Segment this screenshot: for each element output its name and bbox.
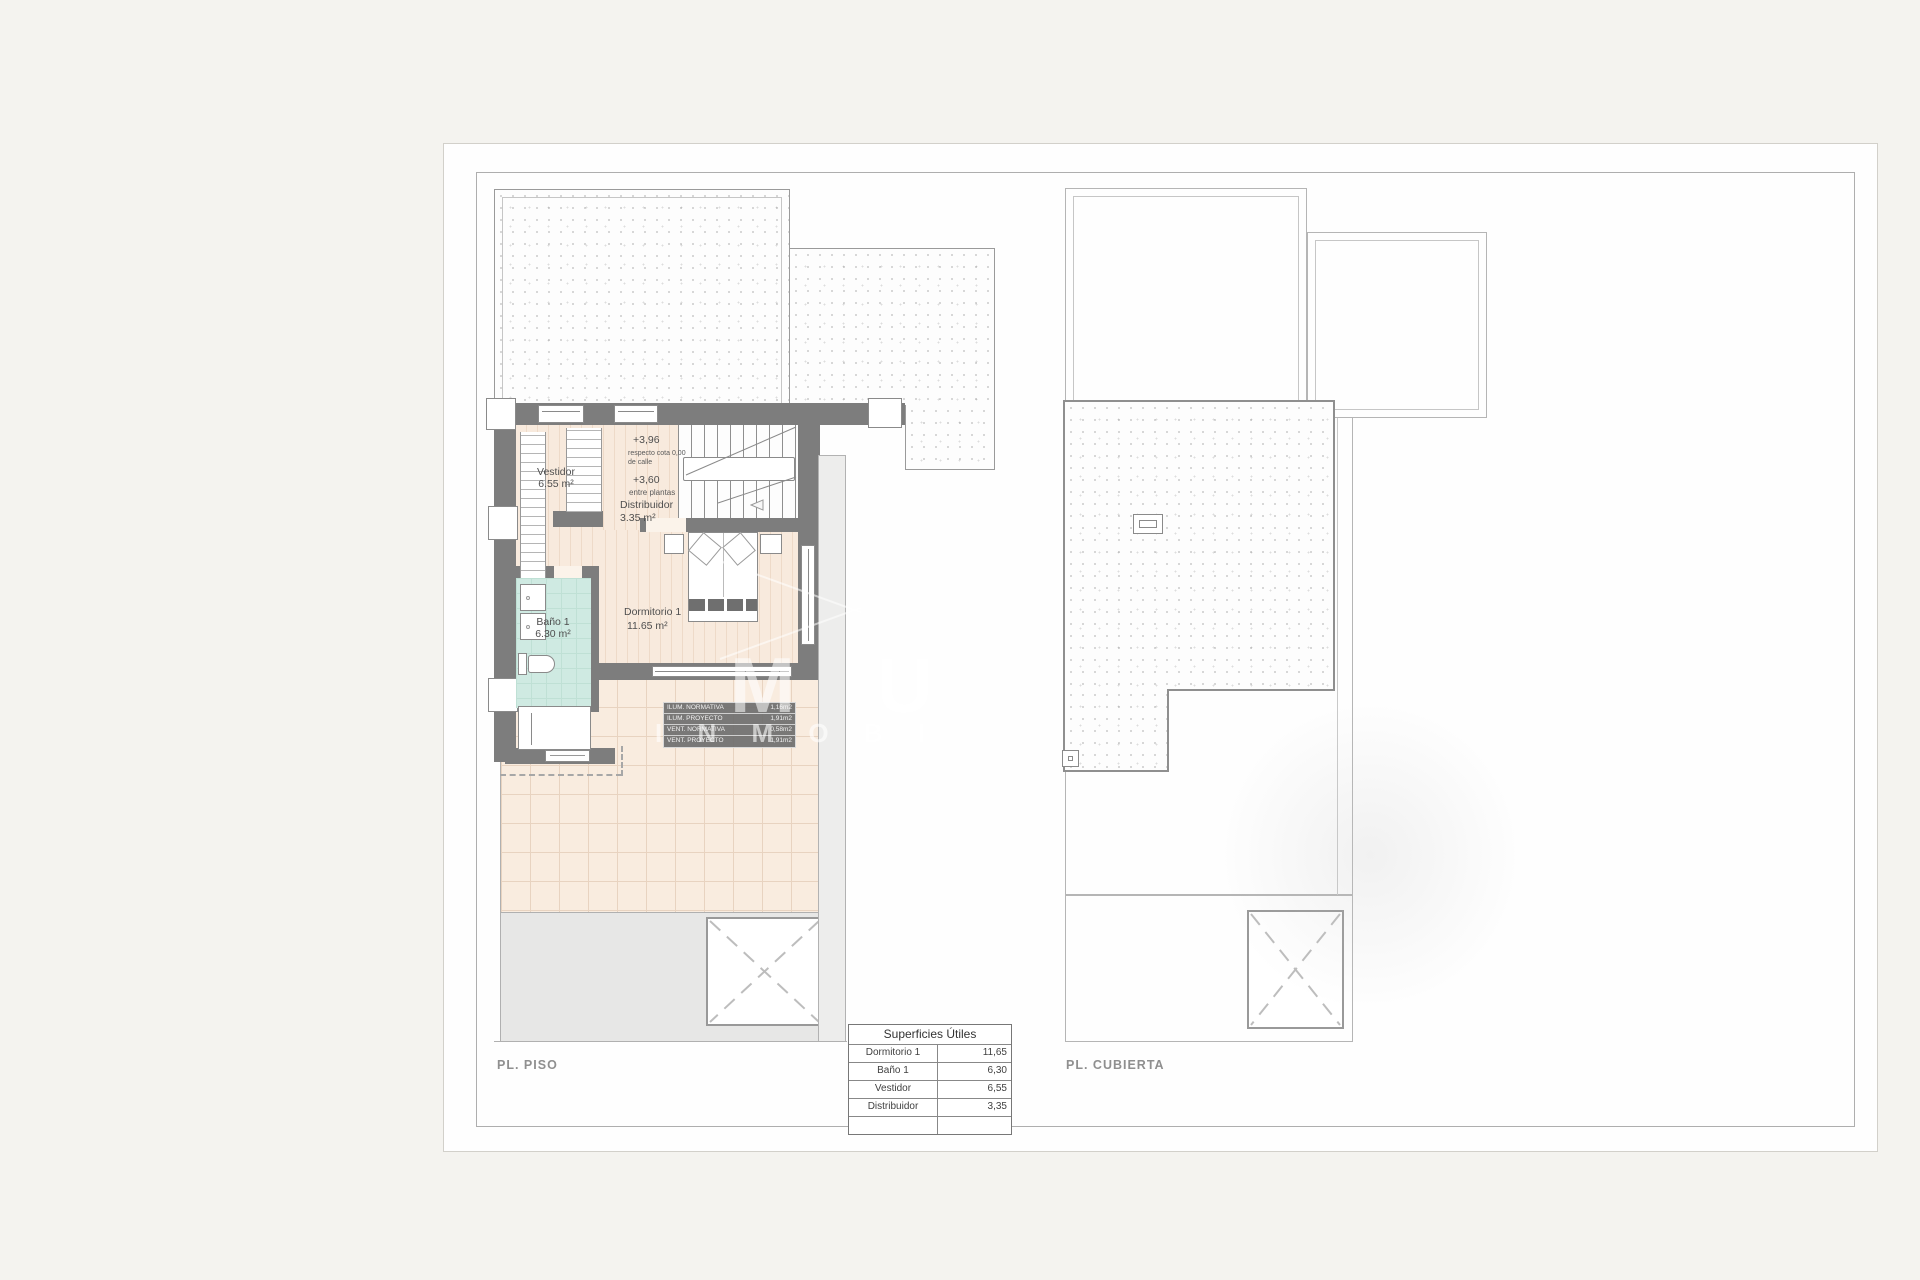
plan-piso-title: PL. PISO: [497, 1058, 558, 1072]
surfaces-row: Vestidor6,55: [849, 1080, 1011, 1098]
piso-roof-terrace-side: [905, 405, 995, 470]
top-wall-window-1: [538, 405, 584, 423]
plan-cubierta-title: PL. CUBIERTA: [1066, 1058, 1165, 1072]
corner-pillar-nw: [486, 398, 516, 430]
toilet-tank: [518, 653, 527, 675]
bottom-wall-fixture: [545, 750, 590, 762]
terrace-inner-line: [502, 197, 782, 403]
watermark-blob: [1160, 640, 1580, 1070]
bedroom-sliding-window: [652, 666, 792, 677]
vestidor-label: Vestidor 6.55 m²: [521, 466, 591, 490]
stair-direction-lines: [678, 425, 800, 530]
left-wall-pillar-2: [488, 678, 518, 712]
ventilation-table: ILUM. NORMATIVA1,16m2 ILUM. PROYECTO1,91…: [663, 702, 796, 748]
surfaces-table: Superficies Útiles Dormitorio 111,65 Bañ…: [848, 1024, 1012, 1135]
surfaces-row-empty: [849, 1116, 1011, 1134]
pergola-dashed-line-h: [500, 774, 622, 776]
vent-row: ILUM. NORMATIVA1,16m2: [664, 703, 795, 714]
bano-name: Baño 1: [518, 616, 588, 628]
dormitorio-area: 11.65 m²: [627, 620, 668, 632]
piso-skylight-x: [706, 917, 823, 1026]
bano-label: Baño 1 6.30 m²: [518, 616, 588, 640]
elevation-upper-note1: respecto cota 0,00: [628, 450, 686, 458]
floorplan-document: ILUM. NORMATIVA1,16m2 ILUM. PROYECTO1,91…: [0, 0, 1920, 1280]
vent-row: VENT. NORMATIVA0,58m2: [664, 725, 795, 736]
distribuidor-name: Distribuidor: [620, 499, 673, 511]
shower-tray: [518, 706, 591, 750]
surfaces-table-title: Superficies Útiles: [849, 1025, 1011, 1044]
cubierta-terrace-ext-inner: [1315, 240, 1479, 410]
nightstand-left: [664, 534, 684, 554]
piso-roof-terrace-upper-right: [790, 248, 995, 405]
elevation-mid-note: entre plantas: [629, 489, 675, 497]
piso-bottom-boundary: [494, 1041, 847, 1042]
pergola-dashed-line-v: [621, 746, 623, 776]
roof-drain-symbol: [1062, 750, 1079, 767]
elevation-upper-note2: de calle: [628, 459, 652, 467]
corner-pillar-ne: [868, 398, 902, 428]
pillow-right: [722, 532, 756, 566]
left-wall-pillar-1: [488, 506, 518, 540]
vent-row: VENT. PROYECTO1,91m2: [664, 736, 795, 746]
bath-sink-1: [520, 584, 546, 611]
door-swing-marker: [750, 499, 764, 511]
elevation-upper: +3,96: [633, 434, 660, 446]
top-wall-window-2: [614, 405, 658, 423]
cubierta-terrace-block-inner: [1073, 196, 1299, 410]
nightstand-right: [760, 534, 782, 554]
surfaces-row: Baño 16,30: [849, 1062, 1011, 1080]
vestidor-area: 6.55 m²: [521, 478, 591, 490]
bano-area: 6.30 m²: [518, 628, 588, 640]
surfaces-row: Distribuidor3,35: [849, 1098, 1011, 1116]
chimney-symbol: [1133, 514, 1163, 534]
distribuidor-area: 3.35 m²: [620, 512, 656, 524]
wardrobe-partition-cap: [553, 511, 603, 527]
vestidor-name: Vestidor: [521, 466, 591, 478]
piso-side-gallery: [818, 455, 846, 1042]
toilet-bowl: [528, 655, 555, 673]
vent-row: ILUM. PROYECTO1,91m2: [664, 714, 795, 725]
elevation-mid: +3,60: [633, 474, 660, 486]
pillow-left: [688, 532, 722, 566]
bed-runner: [689, 599, 757, 611]
dormitorio-name: Dormitorio 1: [624, 606, 681, 618]
surfaces-row: Dormitorio 111,65: [849, 1044, 1011, 1062]
bed: [688, 532, 758, 622]
